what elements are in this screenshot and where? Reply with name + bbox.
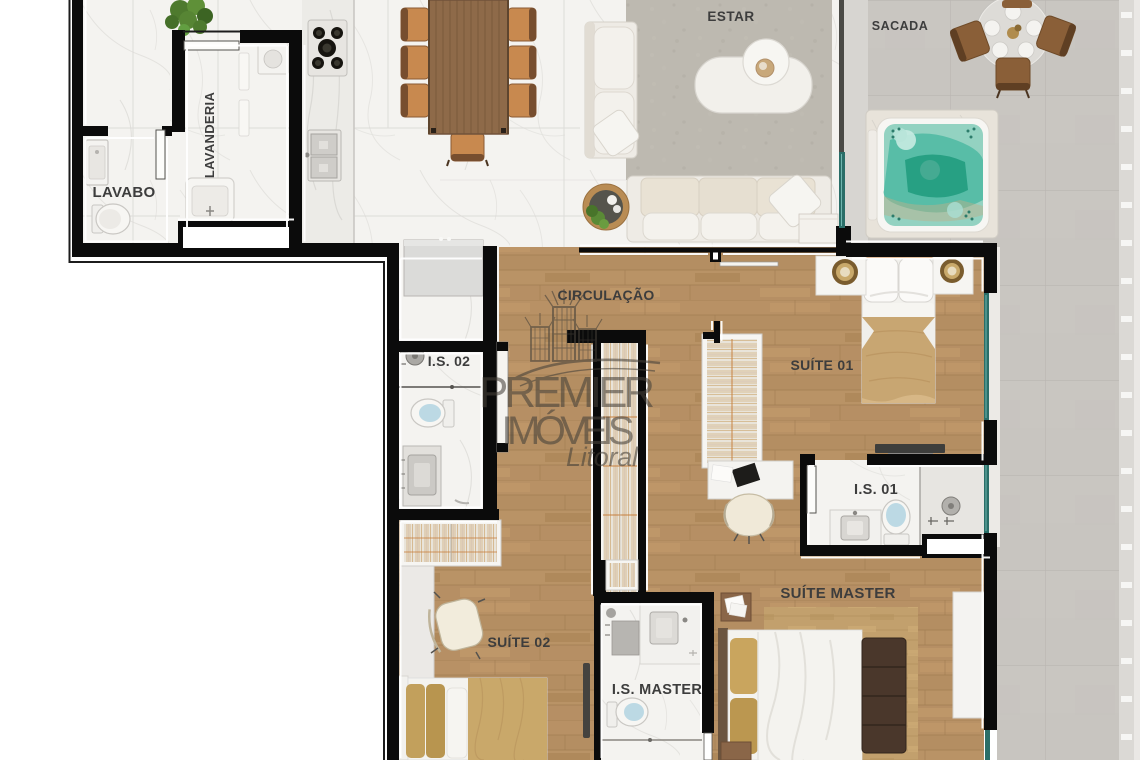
svg-text:ESTAR: ESTAR <box>707 9 754 24</box>
svg-text:SUÍTE 02: SUÍTE 02 <box>487 634 550 650</box>
svg-text:SUÍTE 01: SUÍTE 01 <box>790 357 853 373</box>
svg-text:LAVANDERIA: LAVANDERIA <box>202 92 217 179</box>
svg-text:SACADA: SACADA <box>872 19 928 33</box>
svg-text:I.S. 02: I.S. 02 <box>428 353 471 369</box>
svg-text:Litoral: Litoral <box>566 442 639 472</box>
svg-text:SUÍTE MASTER: SUÍTE MASTER <box>780 585 895 602</box>
svg-text:LAVABO: LAVABO <box>93 184 156 201</box>
svg-text:I.S. MASTER: I.S. MASTER <box>612 682 703 698</box>
svg-text:I.S. 01: I.S. 01 <box>854 482 898 498</box>
